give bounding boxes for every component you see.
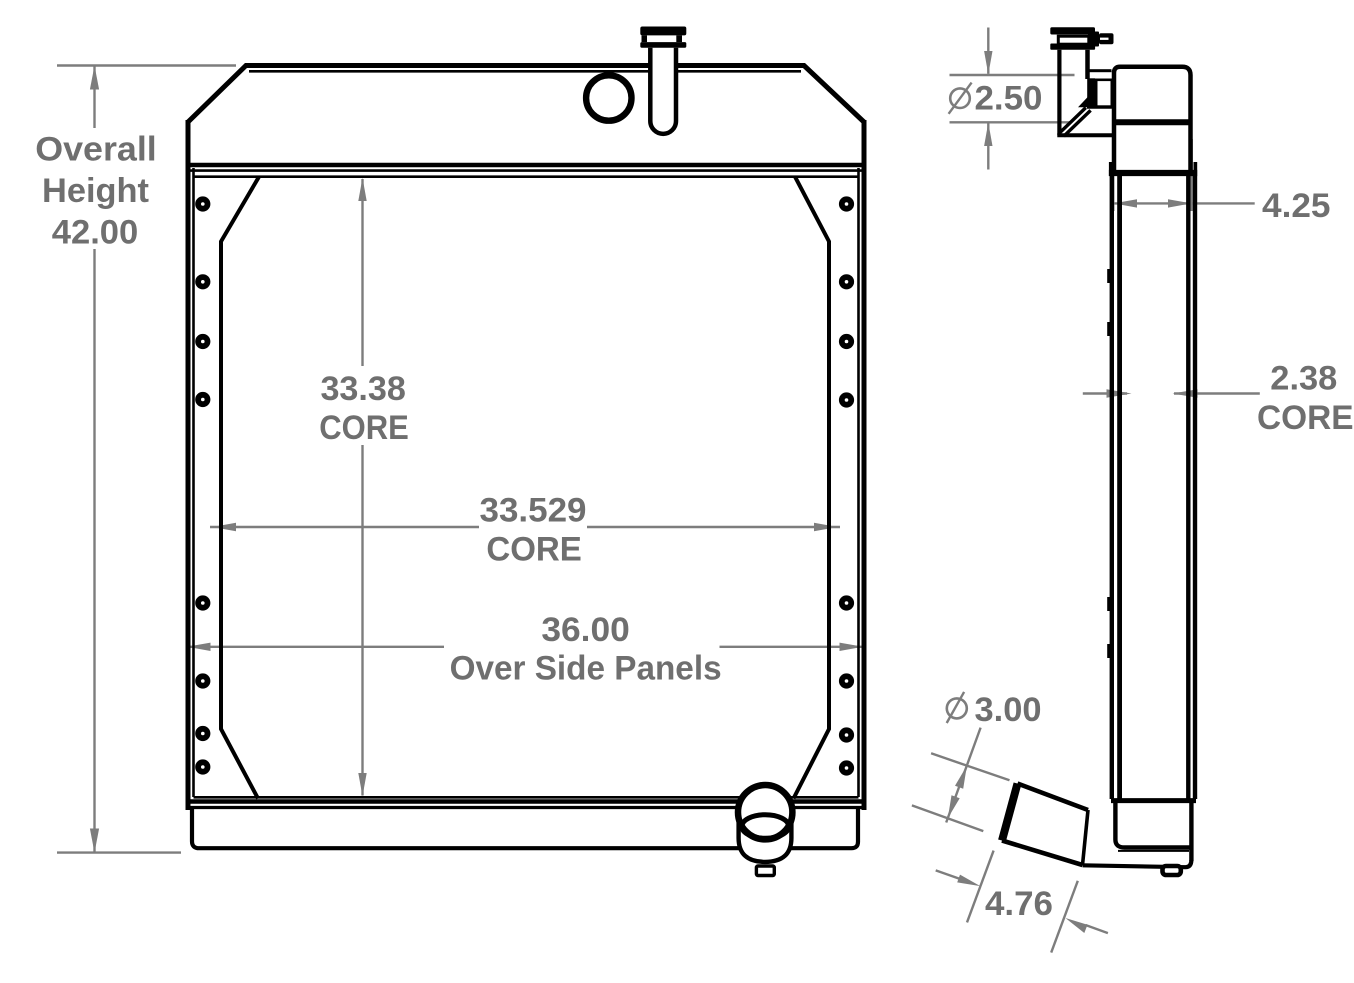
svg-text:CORE: CORE: [319, 409, 409, 447]
svg-text:Height: Height: [42, 172, 150, 210]
svg-text:CORE: CORE: [1257, 399, 1354, 437]
svg-text:42.00: 42.00: [52, 213, 139, 251]
svg-text:4.76: 4.76: [985, 885, 1053, 923]
svg-text:33.529: 33.529: [480, 492, 587, 530]
svg-text:Overall: Overall: [35, 131, 157, 169]
svg-text:2.38: 2.38: [1270, 359, 1337, 397]
svg-text:2.50: 2.50: [975, 80, 1043, 118]
svg-text:CORE: CORE: [486, 531, 582, 569]
svg-text:Over Side Panels: Over Side Panels: [450, 650, 722, 688]
svg-text:36.00: 36.00: [541, 611, 630, 649]
svg-text:3.00: 3.00: [975, 691, 1042, 729]
svg-text:33.38: 33.38: [320, 370, 406, 408]
svg-text:4.25: 4.25: [1262, 187, 1331, 225]
